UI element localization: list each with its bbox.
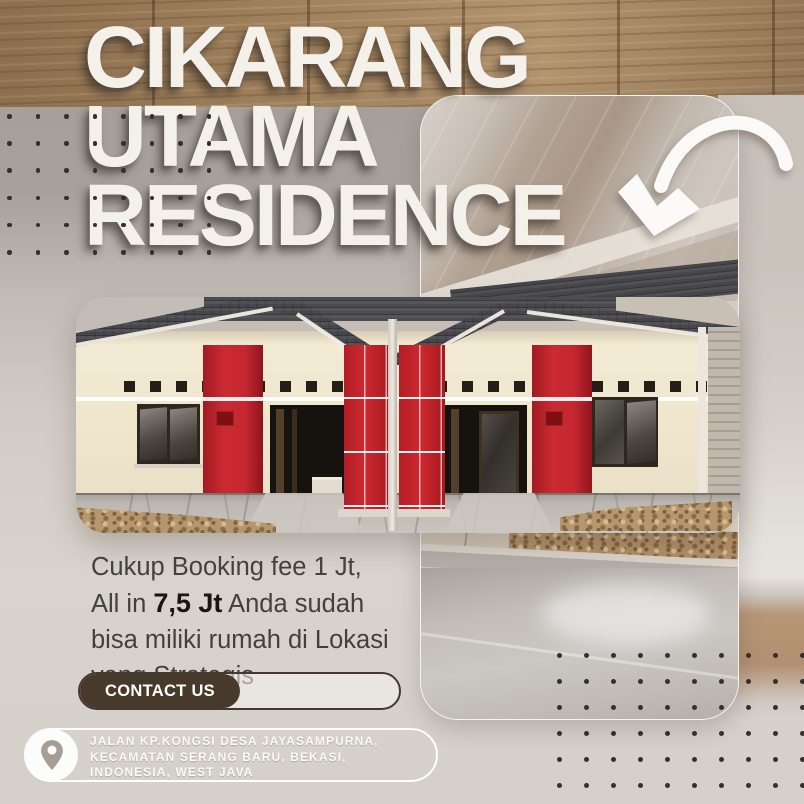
- flyer-canvas: CIKARANG UTAMA RESIDENCE Cukup Booking f…: [0, 0, 804, 804]
- title-line-2: UTAMA: [84, 97, 565, 176]
- porch-left: [270, 405, 344, 500]
- window-right: [592, 397, 658, 467]
- red-pillar-left: [203, 345, 263, 505]
- contact-us-button[interactable]: CONTACT US: [78, 672, 401, 710]
- red-tile-panel-right: [399, 345, 445, 511]
- houses-photo-card: [76, 297, 740, 533]
- contact-us-label: CONTACT US: [105, 682, 215, 701]
- red-pillar-right: [532, 345, 592, 505]
- title-line-1: CIKARANG: [84, 18, 565, 97]
- curved-arrow-down-left-icon: [610, 112, 795, 252]
- porch-right: [445, 405, 527, 503]
- address-line-3: INDONESIA, WEST JAVA: [90, 765, 379, 781]
- window-left: [137, 404, 200, 464]
- red-tile-panel-left: [344, 345, 390, 511]
- glass-door: [479, 411, 519, 495]
- address-line-1: JALAN KP.KONGSI DESA JAYASAMPURNA,: [90, 734, 379, 750]
- title-line-3: RESIDENCE: [84, 176, 565, 255]
- contact-us-label-pill[interactable]: CONTACT US: [80, 674, 240, 708]
- address-line-2: KECAMATAN SERANG BARU, BEKASI,: [90, 750, 379, 766]
- page-title: CIKARANG UTAMA RESIDENCE: [84, 18, 565, 255]
- address-text: JALAN KP.KONGSI DESA JAYASAMPURNA, KECAM…: [90, 734, 379, 781]
- brick-column: [708, 327, 740, 495]
- address-bar: JALAN KP.KONGSI DESA JAYASAMPURNA, KECAM…: [24, 728, 438, 782]
- downspout: [388, 319, 397, 531]
- location-pin-icon: [26, 729, 78, 781]
